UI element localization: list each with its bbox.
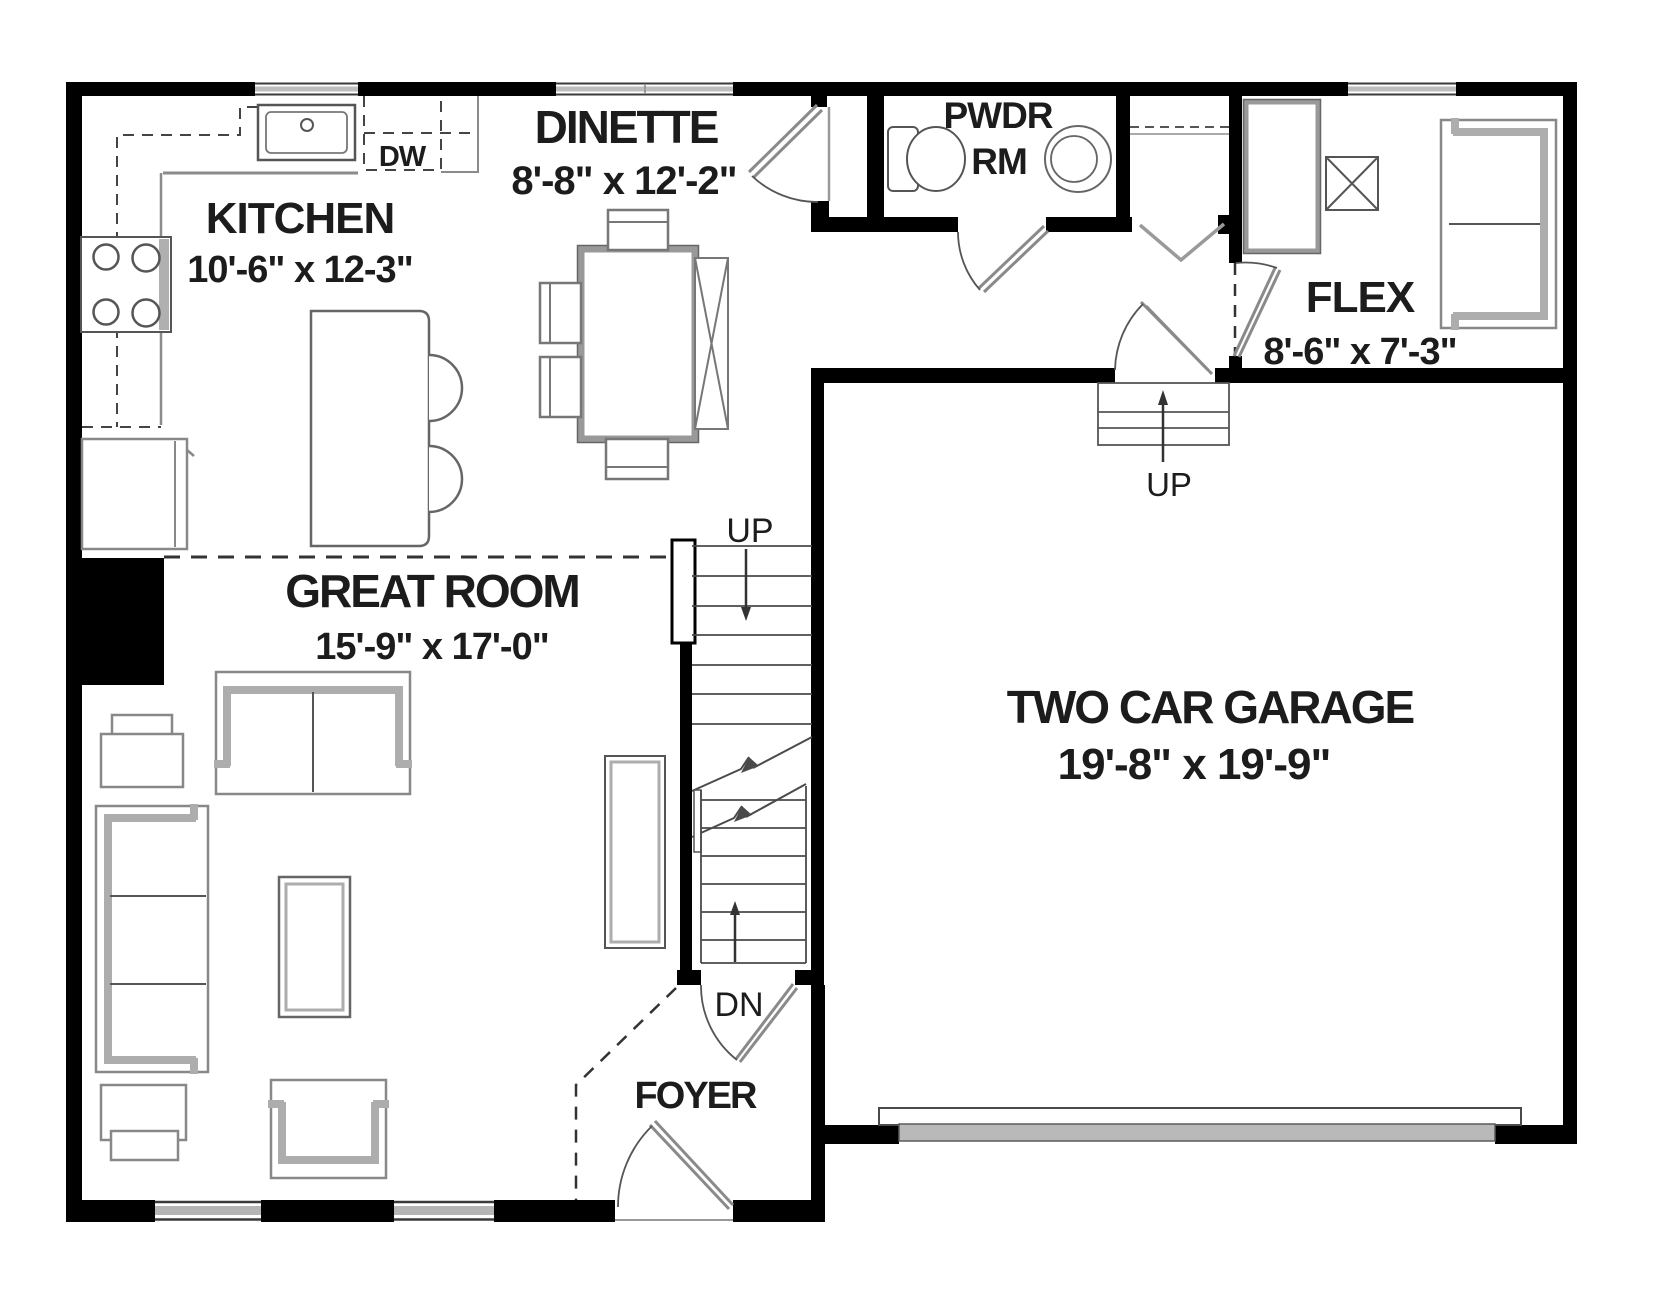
svg-text:TWO CAR GARAGE: TWO CAR GARAGE	[1007, 681, 1414, 733]
svg-text:DN: DN	[714, 986, 763, 1024]
svg-text:10'-6" x 12-3": 10'-6" x 12-3"	[187, 249, 412, 291]
svg-text:FLEX: FLEX	[1306, 273, 1415, 322]
svg-text:8'-6" x 7'-3": 8'-6" x 7'-3"	[1263, 331, 1456, 373]
svg-text:15'-9" x 17'-0": 15'-9" x 17'-0"	[315, 626, 548, 668]
svg-text:GREAT ROOM: GREAT ROOM	[285, 565, 578, 617]
svg-text:UP: UP	[1146, 466, 1192, 503]
svg-text:KITCHEN: KITCHEN	[206, 194, 395, 243]
svg-text:UP: UP	[726, 512, 773, 550]
svg-text:PWDR: PWDR	[943, 95, 1052, 136]
svg-text:8'-8" x 12'-2": 8'-8" x 12'-2"	[511, 159, 736, 203]
svg-text:FOYER: FOYER	[635, 1075, 757, 1117]
svg-text:RM: RM	[971, 141, 1027, 182]
svg-text:DINETTE: DINETTE	[535, 101, 718, 153]
svg-text:19'-8" x 19'-9": 19'-8" x 19'-9"	[1058, 740, 1331, 789]
svg-text:DW: DW	[379, 141, 427, 173]
